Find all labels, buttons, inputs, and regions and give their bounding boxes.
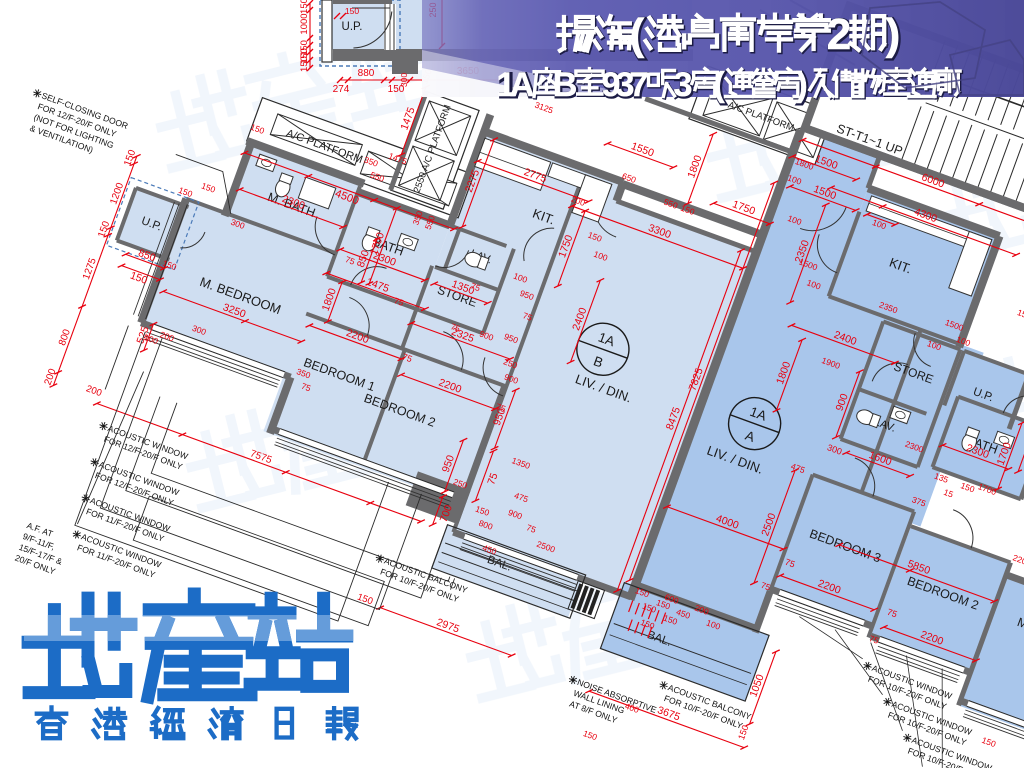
- svg-text:2: 2: [827, 10, 851, 59]
- svg-text:274: 274: [333, 84, 350, 95]
- svg-text:(: (: [713, 66, 725, 104]
- svg-text:): ): [886, 10, 901, 59]
- svg-text:7: 7: [630, 66, 649, 104]
- svg-text:): ): [796, 66, 807, 104]
- svg-text:300: 300: [399, 73, 409, 87]
- svg-text:880: 880: [358, 68, 375, 79]
- svg-text:U.P.: U.P.: [342, 21, 363, 33]
- svg-text:150: 150: [299, 0, 310, 14]
- svg-text:150: 150: [345, 6, 359, 16]
- svg-text:(: (: [630, 10, 645, 59]
- svg-text:150: 150: [299, 56, 310, 72]
- svg-text:B: B: [553, 66, 578, 104]
- svg-text:A: A: [510, 66, 535, 104]
- svg-text:3: 3: [674, 66, 693, 104]
- svg-text:1000: 1000: [299, 13, 310, 34]
